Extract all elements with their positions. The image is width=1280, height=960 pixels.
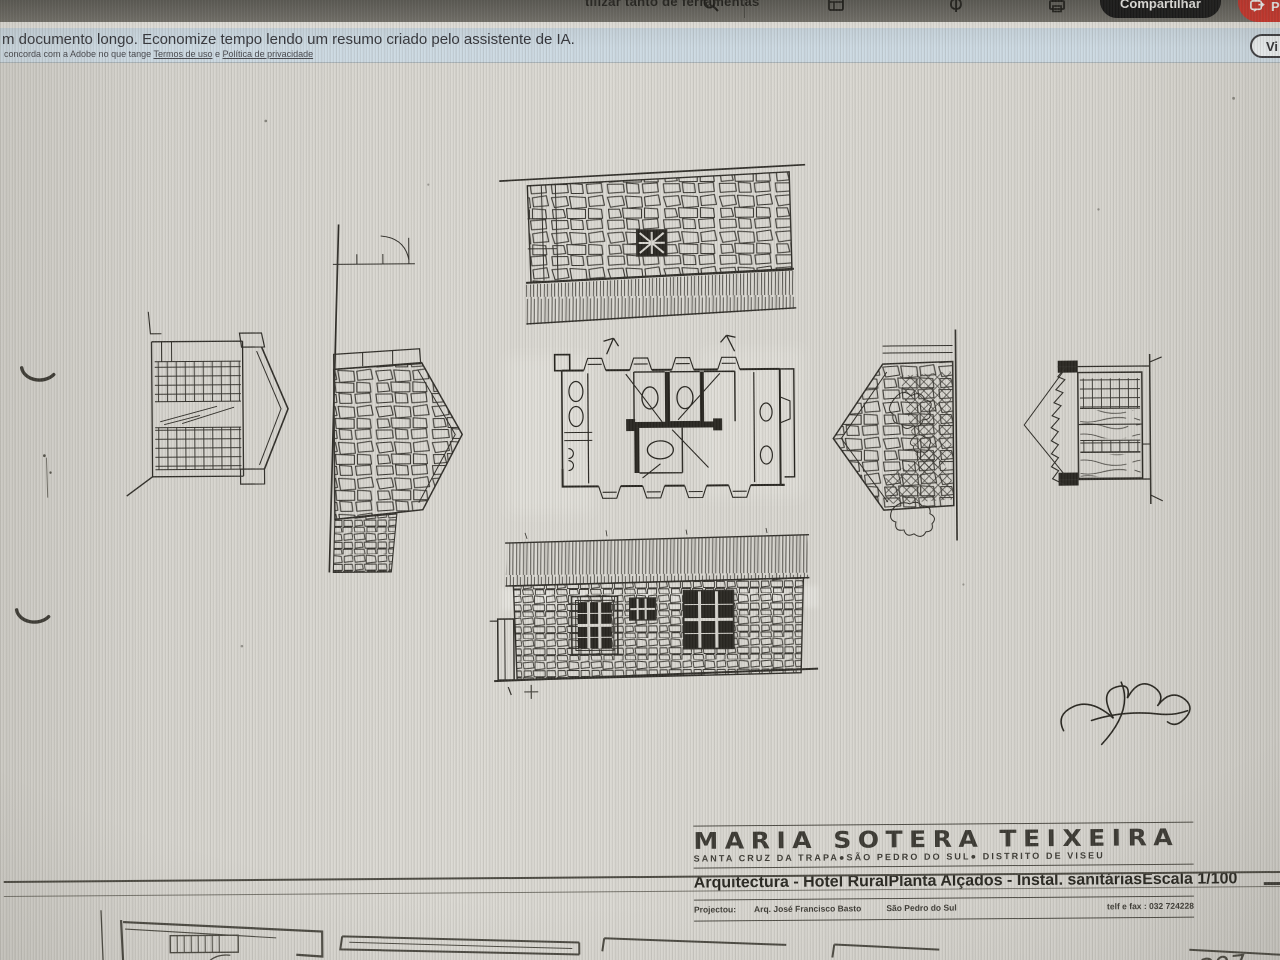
architect-signature [1057, 675, 1218, 751]
banner-message: m documento longo. Economize tempo lendo… [2, 31, 575, 48]
elevation-south [487, 527, 828, 700]
section-west [121, 303, 298, 504]
gable-elevation-right [824, 327, 976, 543]
terms-link[interactable]: Termos de uso [153, 49, 212, 59]
page-display-icon[interactable] [827, 0, 845, 13]
export-label: P [1271, 0, 1280, 14]
privacy-link[interactable]: Política de privacidade [223, 49, 314, 59]
banner-disclaimer: concorda com a Adobe no que tange Termos… [4, 49, 313, 59]
acrobat-toolbar: tilizar tanto de ferramentas Compartilha… [0, 0, 1280, 22]
ai-assistant-banner: m documento longo. Economize tempo lendo… [0, 28, 1280, 63]
gable-elevation-left [317, 223, 485, 574]
read-aloud-icon[interactable] [947, 0, 965, 13]
export-icon [1250, 0, 1265, 14]
drawing-sheet: MARIA SOTERA TEIXEIRA SANTA CRUZ DA TRAP… [0, 58, 1280, 960]
disclaimer-text: concorda com a Adobe no que tange [4, 49, 151, 59]
page-edge-dash [1264, 882, 1280, 885]
section-east [1002, 352, 1168, 508]
search-icon[interactable] [702, 0, 720, 13]
share-button[interactable]: Compartilhar [1100, 0, 1221, 18]
elevation-north [493, 157, 814, 340]
toolbar-divider [744, 0, 745, 18]
print-icon[interactable] [1048, 0, 1066, 13]
registration-cross [522, 683, 540, 701]
view-summary-button[interactable]: Vi [1250, 34, 1280, 58]
disclaimer-conjunction: e [215, 49, 220, 59]
toolbar-tools-label: tilizar tanto de ferramentas [585, 0, 760, 9]
architect-name: MARIA SOTERA TEIXEIRA [693, 826, 1193, 854]
sanitary-floor-plan [521, 327, 822, 514]
screen-photo: tilizar tanto de ferramentas Compartilha… [0, 0, 1280, 960]
export-pdf-button[interactable]: P [1238, 0, 1280, 22]
document-viewport[interactable]: MARIA SOTERA TEIXEIRA SANTA CRUZ DA TRAP… [0, 63, 1280, 960]
next-page-partial-drawings [4, 889, 1280, 960]
